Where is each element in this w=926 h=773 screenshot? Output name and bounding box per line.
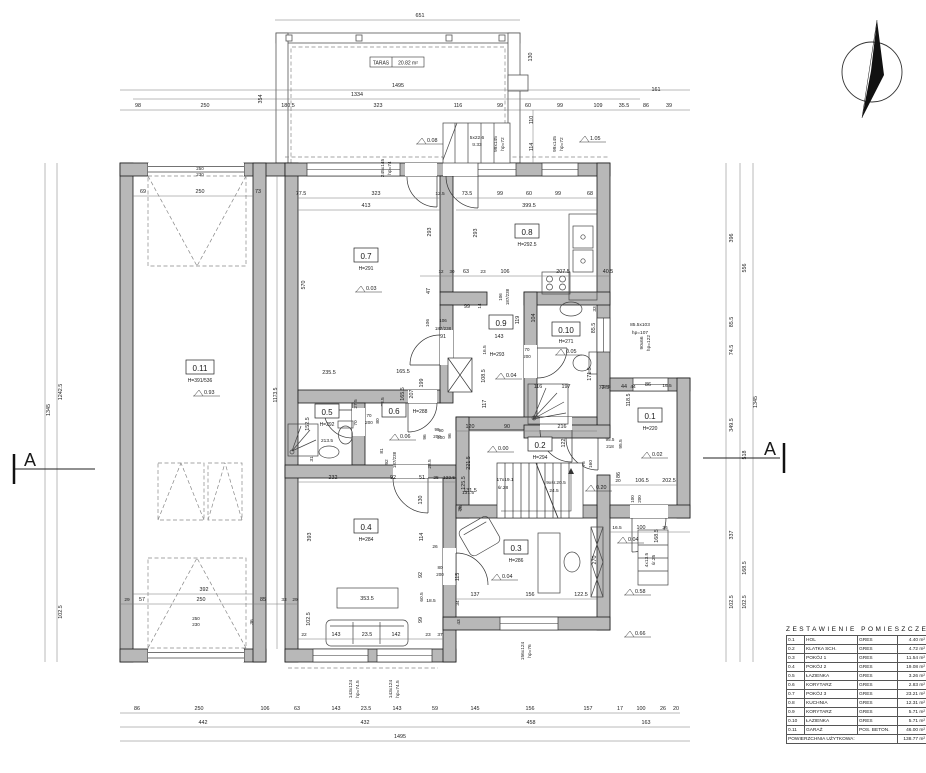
dimension-text: hp=74.5 bbox=[395, 680, 401, 698]
dimension-text: 32.5 bbox=[601, 384, 611, 390]
dimension-text: 26 bbox=[662, 525, 668, 531]
dimension-text: hp=72 bbox=[500, 137, 506, 151]
dimension-text: 57 bbox=[139, 597, 145, 603]
dimension-text: 293 bbox=[427, 228, 433, 237]
room-schedule-cell: 0.11 bbox=[787, 726, 805, 735]
room-schedule-cell: POS. BETON. bbox=[858, 726, 898, 735]
dimension-text: 86 bbox=[645, 382, 651, 388]
dimension-text: 131.5 bbox=[462, 490, 474, 496]
dimension-text: 130 bbox=[528, 53, 534, 62]
room-number: 0.10 bbox=[558, 326, 574, 335]
dimension-text: 92 bbox=[390, 475, 396, 481]
room-schedule-cell: 4.40 m² bbox=[898, 636, 926, 645]
level-value: 0.00 bbox=[498, 446, 509, 452]
room-schedule-row: 0.4POKÓJ 2GRES19.08 m² bbox=[787, 663, 926, 672]
dimension-text: 221.5 bbox=[466, 456, 472, 470]
dimension-text: 250 bbox=[196, 166, 204, 171]
dimension-text: 392 bbox=[200, 587, 209, 593]
dimension-text: hp=74 bbox=[387, 161, 393, 175]
dimension-text: 25 bbox=[433, 475, 439, 481]
north-arrow-icon bbox=[842, 20, 902, 118]
dimension-text: 119 bbox=[515, 316, 521, 325]
dimension-text: 26 bbox=[660, 706, 666, 712]
dimension-text: 199 bbox=[419, 379, 425, 388]
dimension-text: 160 bbox=[588, 460, 594, 468]
room-schedule-cell: GRES bbox=[858, 690, 898, 699]
dimension-text: 152.5 bbox=[305, 417, 311, 431]
dimension-text: 114 bbox=[419, 533, 425, 542]
room-schedule-cell: 0.3 bbox=[787, 654, 805, 663]
dimension-text: 200 bbox=[437, 435, 445, 440]
level-value: 0.03 bbox=[366, 286, 377, 292]
dimension-text: 4x13.5 bbox=[644, 552, 650, 567]
terrace-name: TARAS bbox=[373, 61, 390, 67]
garage-door-dashes bbox=[148, 176, 246, 648]
room-schedule-cell: 0.4 bbox=[787, 663, 805, 672]
dimension-text: 85.5 bbox=[591, 323, 597, 334]
dimension-text: 23.5 bbox=[361, 706, 372, 712]
room-height: H=271 bbox=[559, 339, 574, 345]
dimension-text: 100 bbox=[637, 525, 646, 531]
stove-icon bbox=[542, 272, 570, 294]
dimension-text: 143x124 bbox=[388, 679, 394, 698]
dimension-text: 60.5 bbox=[419, 592, 425, 602]
dimension-text: 187/238 bbox=[435, 326, 452, 331]
room-number: 0.6 bbox=[388, 407, 400, 416]
kitchen-counter-icon bbox=[569, 214, 597, 300]
room-height: H=293 bbox=[490, 352, 505, 358]
dimension-text: 92 bbox=[418, 572, 424, 578]
dimension-text: 108.5 bbox=[481, 369, 487, 383]
dimension-text: 63 bbox=[463, 269, 469, 275]
room-schedule-cell: 0.5 bbox=[787, 672, 805, 681]
dimension-text: 99 bbox=[555, 191, 561, 197]
room-schedule-cell: POKÓJ 3 bbox=[805, 690, 858, 699]
dimension-text: 70 bbox=[353, 420, 359, 426]
dimension-text: 5x22.6 bbox=[470, 135, 485, 141]
room-height: H=294 bbox=[533, 455, 548, 461]
dimension-text: 323 bbox=[372, 191, 381, 197]
dimension-text: 122.5 bbox=[574, 592, 588, 598]
dimension-text: 106 bbox=[261, 706, 270, 712]
dimension-text: hp=107 bbox=[632, 330, 648, 336]
dimension-text: 118.5 bbox=[626, 393, 632, 406]
room-schedule-row: 0.7POKÓJ 3GRES23.21 m² bbox=[787, 690, 926, 699]
dimension-text: 180.5 bbox=[281, 103, 295, 109]
dimension-text: 187/238 bbox=[392, 451, 397, 468]
dimension-text: 51 bbox=[419, 475, 425, 481]
dimension-text: 458 bbox=[527, 720, 536, 726]
floor-plan-sheet: TARAS 20.82 m² bbox=[0, 0, 926, 768]
dimension-text: 92 bbox=[384, 459, 390, 465]
room-number: 0.8 bbox=[521, 228, 533, 237]
room-schedule-cell: 0.1 bbox=[787, 636, 805, 645]
level-value: 0.02 bbox=[652, 452, 663, 458]
dimension-text: 90 bbox=[504, 424, 510, 430]
room-schedule-row: 0.6KORYTARZGRES2.83 m² bbox=[787, 681, 926, 690]
dimension-text: 393 bbox=[307, 533, 313, 542]
dimension-text: 30 bbox=[449, 269, 455, 274]
dimension-text: 651 bbox=[416, 13, 425, 19]
room-schedule-cell: ŁAZIENKA bbox=[805, 717, 858, 726]
dimension-text: 80 bbox=[437, 565, 443, 570]
dimension-text: 570 bbox=[301, 281, 307, 290]
room-schedule-cell: 3.26 m² bbox=[898, 672, 926, 681]
dimension-text: 399.5 bbox=[522, 203, 536, 209]
room-schedule-cell: 11.54 m² bbox=[898, 654, 926, 663]
room-number: 0.2 bbox=[534, 441, 546, 450]
dimension-text: 122.5 bbox=[443, 475, 455, 481]
dimension-text: 26 bbox=[432, 544, 438, 550]
level-value: 0.08 bbox=[427, 138, 438, 144]
dimension-text: 99x145 bbox=[552, 136, 558, 152]
dimension-text: 413 bbox=[362, 203, 371, 209]
dimension-text: 33 bbox=[281, 597, 287, 603]
dimension-text: 60 bbox=[525, 103, 531, 109]
dimension-text: 354 bbox=[258, 95, 264, 104]
room-schedule-cell: 12.31 m² bbox=[898, 699, 926, 708]
section-label-left: A bbox=[24, 450, 36, 470]
dimension-text: 102.5 bbox=[742, 595, 748, 609]
dimension-text: 556 bbox=[742, 264, 748, 273]
dimension-text: 171.5 bbox=[587, 367, 593, 381]
dimension-text: 110 bbox=[529, 116, 535, 125]
dimension-text: 106 bbox=[501, 269, 510, 275]
room-schedule-row: 0.10ŁAZIENKAGRES5.71 m² bbox=[787, 717, 926, 726]
dimension-text: 200 bbox=[365, 420, 373, 425]
dimension-text: 353.5 bbox=[360, 596, 374, 602]
dimension-text: 73.5 bbox=[462, 191, 473, 197]
room-schedule-cell: 5.71 m² bbox=[898, 708, 926, 717]
dimension-text: 1242.5 bbox=[58, 384, 64, 401]
dimension-text: 250 bbox=[195, 706, 204, 712]
dimension-text: 22 bbox=[301, 632, 307, 638]
dimension-text: 218 bbox=[606, 444, 614, 449]
terrace-label: TARAS 20.82 m² bbox=[370, 57, 424, 67]
level-value: 0.66 bbox=[635, 631, 646, 637]
dimension-text: 47 bbox=[426, 288, 432, 294]
dimension-text: hp=76 bbox=[527, 644, 533, 658]
dimension-text: 90 bbox=[438, 428, 444, 433]
dimension-text: śr.28 bbox=[498, 485, 509, 491]
dimension-text: 1495 bbox=[392, 83, 404, 89]
dimension-text: 24.5 bbox=[549, 488, 559, 494]
dimension-text: 70 bbox=[366, 413, 372, 418]
dimension-text: 102.5 bbox=[306, 612, 312, 626]
dimension-text: 442 bbox=[199, 720, 208, 726]
dimension-text: 9xśr.20.5 bbox=[546, 480, 566, 486]
total-label: POWIERZCHNIA UŻYTKOWA: bbox=[787, 735, 898, 744]
room-schedule-row: 0.9KORYTARZGRES5.71 m² bbox=[787, 708, 926, 717]
dimension-text: 29 bbox=[124, 597, 130, 603]
dimension-text: 37 bbox=[437, 632, 443, 638]
room-schedule-cell: 0.2 bbox=[787, 645, 805, 654]
dimension-text: 100 bbox=[637, 706, 646, 712]
dimension-text: 197 bbox=[562, 384, 571, 390]
dimension-text: 90x66 bbox=[639, 336, 645, 349]
desk-icon bbox=[538, 533, 580, 593]
room-number: 0.1 bbox=[644, 412, 656, 421]
room-schedule-cell: KLATKA SCH. bbox=[805, 645, 858, 654]
room-schedule-title: ZESTAWIENIE POMIESZCZEŃ bbox=[786, 626, 922, 633]
dimension-text: 95.5 bbox=[618, 439, 624, 449]
dimension-text: 85.5 bbox=[729, 317, 735, 328]
dimension-text: 114 bbox=[529, 143, 535, 152]
room-number: 0.5 bbox=[321, 408, 333, 417]
dimension-text: 116 bbox=[534, 384, 543, 390]
room-schedule-cell: ŁAZIENKA bbox=[805, 672, 858, 681]
dimension-text: 99 bbox=[497, 103, 503, 109]
room-schedule-cell: POKÓJ 2 bbox=[805, 663, 858, 672]
dimension-text: 40.5 bbox=[603, 269, 614, 275]
dimension-text: 85 bbox=[260, 597, 266, 603]
dimension-text: 44 bbox=[630, 384, 636, 390]
room-schedule: ZESTAWIENIE POMIESZCZEŃ 0.1HOLGRES4.40 m… bbox=[786, 626, 922, 744]
room-schedule-cell: 46.00 m² bbox=[898, 726, 926, 735]
room-schedule-cell: KORYTARZ bbox=[805, 681, 858, 690]
dimension-text: 75 bbox=[581, 461, 587, 467]
dimension-text: 200 bbox=[523, 354, 531, 359]
room-schedule-cell: 0.9 bbox=[787, 708, 805, 717]
dimension-text: 168.5 bbox=[654, 529, 660, 543]
level-value: 0.05 bbox=[566, 349, 577, 355]
dimension-text: 39 bbox=[666, 103, 672, 109]
dimension-text: 250 bbox=[201, 103, 210, 109]
room-number: 0.9 bbox=[495, 319, 507, 328]
room-height: H=391/536 bbox=[188, 378, 213, 384]
dimension-text: 23 bbox=[480, 269, 486, 275]
room-height: H=288 bbox=[413, 409, 428, 415]
dimension-text: 245x145 bbox=[380, 158, 386, 177]
dimension-text: 35.5 bbox=[619, 103, 630, 109]
dimension-text: 26 bbox=[457, 506, 463, 512]
room-schedule-cell: 0.7 bbox=[787, 690, 805, 699]
dimension-text: 16.5 bbox=[482, 345, 488, 355]
dimension-text: 156 bbox=[526, 706, 535, 712]
dimension-text: 29 bbox=[292, 597, 298, 603]
dimension-text: śr.25 bbox=[651, 554, 657, 565]
dimension-text: 230 bbox=[196, 172, 204, 177]
room-schedule-row: 0.5ŁAZIENKAGRES3.26 m² bbox=[787, 672, 926, 681]
dimension-text: 143 bbox=[332, 632, 341, 638]
dimension-text: 337 bbox=[729, 531, 735, 540]
dimension-text: 14 bbox=[477, 303, 483, 309]
dimension-text: 143x124 bbox=[348, 679, 354, 698]
dimension-text: 122 bbox=[561, 439, 567, 448]
dimension-text: 74.5 bbox=[729, 345, 735, 356]
dimension-text: hp=74.5 bbox=[355, 680, 361, 698]
dimension-text: 102.5 bbox=[729, 595, 735, 609]
dimension-text: 17x19.1 bbox=[496, 477, 513, 483]
dimension-text: 349.5 bbox=[729, 418, 735, 432]
dimension-text: 1345 bbox=[46, 404, 52, 416]
dimension-text: 102.5 bbox=[58, 605, 64, 619]
room-schedule-cell: 0.6 bbox=[787, 681, 805, 690]
dimension-text: 33 bbox=[592, 306, 598, 312]
dimension-text: 16.5 bbox=[612, 525, 622, 531]
dimension-text: 432 bbox=[361, 720, 370, 726]
room-number: 0.3 bbox=[510, 544, 522, 553]
room-schedule-cell: POKÓJ 1 bbox=[805, 654, 858, 663]
dimension-labels: 6511495133498250354180.53231169960991093… bbox=[46, 13, 759, 740]
dimension-text: 99 bbox=[497, 191, 503, 197]
dimension-text: 157 bbox=[584, 706, 593, 712]
room-schedule-cell: 0.8 bbox=[787, 699, 805, 708]
dimension-text: 216 bbox=[558, 424, 567, 430]
terrace-area: 20.82 m² bbox=[398, 61, 418, 67]
room-number: 0.7 bbox=[360, 252, 372, 261]
dimension-text: 86 bbox=[643, 103, 649, 109]
dimension-text: 59 bbox=[432, 706, 438, 712]
dimension-text: 137 bbox=[471, 592, 480, 598]
dimension-text: 34 bbox=[455, 600, 461, 606]
dimension-text: 168.5 bbox=[742, 561, 748, 575]
room-schedule-cell: GARAŻ bbox=[805, 726, 858, 735]
dimension-text: 36 bbox=[249, 619, 255, 625]
dimension-text: 98 bbox=[135, 103, 141, 109]
dimension-text: 235.5 bbox=[322, 370, 336, 376]
dimension-text: 106.5 bbox=[635, 478, 649, 484]
room-schedule-cell: 0.10 bbox=[787, 717, 805, 726]
dimension-text: 202.5 bbox=[662, 478, 676, 484]
dimension-text: 16.5 bbox=[662, 383, 672, 389]
room-schedule-row: 0.11GARAŻPOS. BETON.46.00 m² bbox=[787, 726, 926, 735]
dimension-text: 31 bbox=[309, 456, 315, 462]
room-schedule-cell: GRES bbox=[858, 654, 898, 663]
dimension-text: 207 bbox=[409, 390, 415, 399]
dimension-text: 12 bbox=[438, 269, 444, 274]
dimension-text: 99x145 bbox=[493, 136, 499, 152]
dimension-text: 518 bbox=[742, 451, 748, 460]
room-height: H=292.5 bbox=[517, 242, 536, 248]
room-schedule-cell: GRES bbox=[858, 645, 898, 654]
dimension-text: 207.5 bbox=[556, 269, 570, 275]
dimension-text: 165.5 bbox=[400, 387, 406, 401]
room-schedule-cell: GRES bbox=[858, 672, 898, 681]
dimension-text: hp=122 bbox=[646, 335, 652, 351]
dimension-text: 187/238 bbox=[505, 288, 510, 305]
dimension-text: 100 bbox=[630, 495, 635, 503]
dimension-text: 213.5 bbox=[321, 438, 333, 444]
level-value: 0.06 bbox=[400, 434, 411, 440]
dimension-text: 116 bbox=[454, 103, 463, 109]
dimension-text: 200 bbox=[637, 495, 642, 503]
dimension-text: 95.5 bbox=[606, 437, 615, 442]
room-schedule-cell: 23.21 m² bbox=[898, 690, 926, 699]
room-schedule-cell: GRES bbox=[858, 708, 898, 717]
level-value: 0.20 bbox=[596, 485, 607, 491]
staircase bbox=[497, 463, 583, 518]
dimension-text: 18.5 bbox=[426, 598, 436, 604]
dimension-text: 293 bbox=[473, 229, 479, 238]
dimension-text: 69 bbox=[140, 189, 146, 195]
dimension-text: 156x124 bbox=[520, 641, 526, 660]
level-value: 0.04 bbox=[506, 373, 517, 379]
room-schedule-cell: GRES bbox=[858, 663, 898, 672]
dimension-text: 1334 bbox=[351, 92, 363, 98]
dimension-text: 250 bbox=[197, 597, 206, 603]
dimension-text: 120 bbox=[466, 424, 475, 430]
dimension-text: 106 bbox=[498, 293, 503, 301]
dimension-text: 270 bbox=[592, 556, 598, 565]
dimension-text: 85.5x103 bbox=[630, 322, 650, 328]
dimension-text: 77.5 bbox=[296, 191, 307, 197]
chimney-shaft bbox=[448, 358, 472, 392]
room-schedule-table: 0.1HOLGRES4.40 m²0.2KLATKA SCH.GRES4.72 … bbox=[786, 635, 926, 744]
dimension-text: hp=72 bbox=[559, 137, 565, 151]
room-schedule-cell: GRES bbox=[858, 681, 898, 690]
room-height: H=292 bbox=[320, 422, 335, 428]
level-value: 0.04 bbox=[628, 537, 639, 543]
dimension-text: 1173.5 bbox=[273, 387, 279, 402]
room-schedule-row: 0.8KUCHNIAGRES12.31 m² bbox=[787, 699, 926, 708]
dimension-text: 81 bbox=[379, 448, 385, 454]
room-schedule-row: 0.3POKÓJ 1GRES11.54 m² bbox=[787, 654, 926, 663]
room-number: 0.4 bbox=[360, 523, 372, 532]
dimension-text: 68 bbox=[587, 191, 593, 197]
section-label-right: A bbox=[764, 439, 776, 459]
dimension-text: 12.5 bbox=[435, 191, 445, 197]
dimension-text: 161 bbox=[652, 87, 661, 93]
dimension-text: 130 bbox=[418, 496, 424, 505]
dimension-text: 23 bbox=[425, 632, 431, 638]
dimension-text: 86 bbox=[134, 706, 140, 712]
dimension-text: 27.5 bbox=[353, 399, 359, 409]
dimension-text: 17 bbox=[617, 706, 623, 712]
level-value: 0.04 bbox=[502, 574, 513, 580]
dimension-text: 28.5 bbox=[427, 459, 433, 469]
room-schedule-row: 0.1HOLGRES4.40 m² bbox=[787, 636, 926, 645]
dimension-text: 1345 bbox=[753, 396, 759, 408]
dimension-text: 163 bbox=[642, 720, 651, 726]
dimension-text: 96 bbox=[447, 433, 453, 439]
total-area: 138.77 m² bbox=[898, 735, 926, 744]
dimension-text: 60 bbox=[526, 191, 532, 197]
dimension-text: 20 bbox=[673, 706, 679, 712]
dimension-text: 23.5 bbox=[362, 632, 373, 638]
dimension-text: 230 bbox=[192, 622, 200, 627]
dimension-text: 250 bbox=[196, 189, 205, 195]
room-schedule-cell: GRES bbox=[858, 636, 898, 645]
dimension-text: 104 bbox=[531, 314, 537, 323]
dimension-text: 156 bbox=[526, 592, 535, 598]
dimension-text: 165.5 bbox=[396, 369, 410, 375]
dimension-text: 99 bbox=[464, 304, 470, 310]
room-schedule-total-row: POWIERZCHNIA UŻYTKOWA:138.77 m² bbox=[787, 735, 926, 744]
room-schedule-cell: HOL bbox=[805, 636, 858, 645]
room-height: H=286 bbox=[509, 558, 524, 564]
dimension-text: 117 bbox=[482, 400, 488, 409]
dimension-text: 109 bbox=[594, 103, 603, 109]
dimension-text: 63 bbox=[294, 706, 300, 712]
dimension-text: 143 bbox=[393, 706, 402, 712]
dimension-text: 96 bbox=[422, 434, 428, 440]
armchair-icon bbox=[457, 515, 501, 558]
dimension-text: 99 bbox=[418, 617, 424, 623]
dimension-text: 1495 bbox=[394, 734, 406, 740]
dimension-text: 99 bbox=[557, 103, 563, 109]
room-schedule-cell: 19.08 m² bbox=[898, 663, 926, 672]
bathroom-0-10-fixtures bbox=[528, 302, 597, 424]
dimension-text: 20 bbox=[615, 478, 621, 484]
dimension-text: 44 bbox=[621, 384, 627, 390]
dimension-text: 143 bbox=[332, 706, 341, 712]
dimension-text: 70 bbox=[524, 347, 530, 352]
room-height: H=284 bbox=[359, 537, 374, 543]
room-schedule-cell: KUCHNIA bbox=[805, 699, 858, 708]
dimension-text: 73 bbox=[255, 189, 261, 195]
dimension-text: tr.33 bbox=[472, 142, 482, 148]
